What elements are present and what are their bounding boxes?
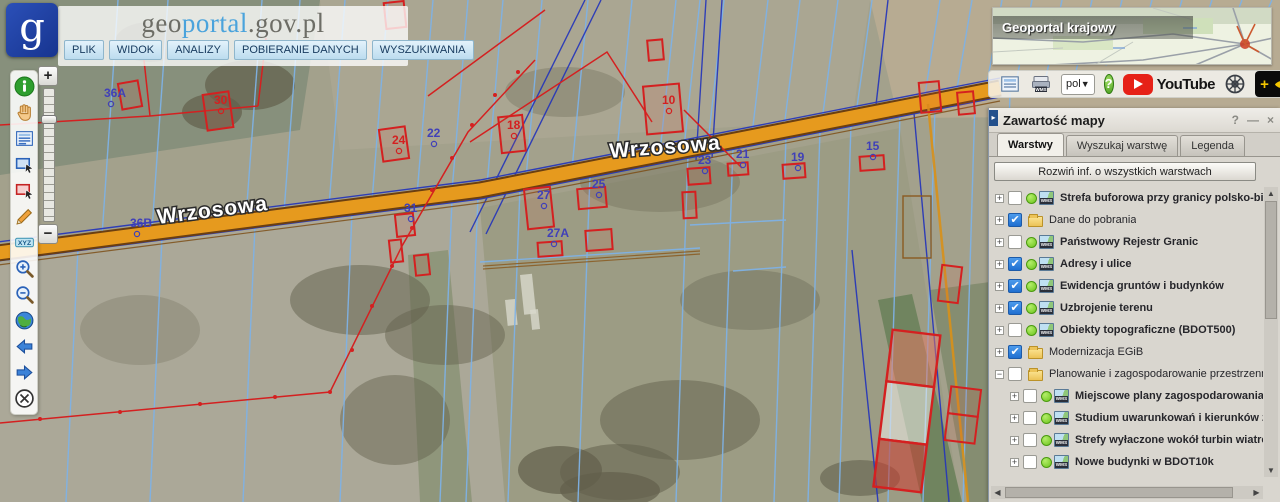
svg-text:18: 18: [507, 118, 521, 132]
wms-layer-icon: [1054, 389, 1069, 403]
layer-checkbox[interactable]: [1023, 411, 1037, 425]
accessibility-contrast-toggle[interactable]: +: [1255, 71, 1280, 97]
zoom-out-icon[interactable]: [14, 284, 35, 305]
geoportal-logo[interactable]: g: [6, 3, 58, 57]
expand-node-icon[interactable]: +: [995, 348, 1004, 357]
scroll-down-icon[interactable]: ▼: [1264, 464, 1278, 477]
draw-pencil-icon[interactable]: [14, 206, 35, 227]
zoom-out-button[interactable]: −: [38, 224, 58, 244]
layer-row: +Strefa buforowa przy granicy polsko-bia…: [991, 187, 1263, 209]
attribute-table-icon[interactable]: [14, 128, 35, 149]
vscroll-thumb[interactable]: [1265, 201, 1277, 319]
contrast-eye-icon: [1274, 78, 1280, 91]
svg-text:15: 15: [866, 139, 880, 153]
clear-map-icon[interactable]: [14, 388, 35, 409]
layer-checkbox[interactable]: [1008, 213, 1022, 227]
layer-label[interactable]: Studium uwarunkowań i kierunków zag: [1075, 412, 1263, 424]
layer-checkbox[interactable]: [1008, 279, 1022, 293]
panel-title: Zawartość mapy: [1003, 113, 1224, 128]
expand-node-icon[interactable]: +: [995, 304, 1004, 313]
layer-row: +Studium uwarunkowań i kierunków zag: [991, 407, 1263, 429]
layer-status-dot: [1041, 413, 1052, 424]
zoom-slider: + −: [38, 66, 60, 244]
panel-body: Rozwiń inf. o wszystkich warstwach +Stre…: [989, 157, 1280, 502]
layer-checkbox[interactable]: [1008, 345, 1022, 359]
layer-row: −Planowanie i zagospodarowanie przestrze…: [991, 363, 1263, 385]
layer-status-dot: [1041, 391, 1052, 402]
chevron-down-icon: ▼: [1081, 79, 1090, 89]
svg-text:19: 19: [791, 150, 805, 164]
map-toolbar: XYZ: [10, 70, 38, 415]
layer-status-dot: [1026, 237, 1037, 248]
panel-collapse-arrow[interactable]: ▸: [989, 110, 998, 126]
main-menu: PLIKWIDOKANALIZYPOBIERANIE DANYCHWYSZUKI…: [64, 40, 408, 60]
svg-text:36A: 36A: [104, 86, 126, 100]
svg-text:27A: 27A: [547, 226, 569, 240]
layer-row: +Strefy wyłaczone wokół turbin wiatrow: [991, 429, 1263, 451]
svg-text:30: 30: [214, 93, 228, 107]
layer-row: +Państwowy Rejestr Granic: [991, 231, 1263, 253]
menu-item-widok[interactable]: WIDOK: [109, 40, 162, 60]
folder-icon: [1028, 216, 1043, 227]
expand-node-icon[interactable]: +: [995, 238, 1004, 247]
panel-titlebar: Zawartość mapy ? — ×: [989, 108, 1280, 133]
svg-text:31: 31: [404, 201, 418, 215]
wms-layer-icon: [1039, 323, 1054, 337]
pan-hand-icon[interactable]: [14, 102, 35, 123]
contrast-plus-icon: +: [1260, 77, 1269, 92]
layer-label[interactable]: Modernizacja EGiB: [1049, 346, 1143, 358]
youtube-play-icon: [1123, 74, 1153, 95]
vertical-scrollbar[interactable]: ▲ ▼: [1264, 187, 1278, 477]
geoportal-app: 36A36B3024221810272527A2321191531Wrzosow…: [0, 0, 1280, 502]
expand-node-icon[interactable]: +: [995, 282, 1004, 291]
expand-all-layers-button[interactable]: Rozwiń inf. o wszystkich warstwach: [994, 162, 1256, 181]
brand-part-portal: portal: [182, 8, 248, 38]
help-button[interactable]: ?: [1104, 74, 1114, 94]
select-area-blue-icon[interactable]: [14, 154, 35, 175]
layer-checkbox[interactable]: [1023, 433, 1037, 447]
expand-node-icon[interactable]: +: [995, 194, 1004, 203]
layer-row: +Portale mapowe: [991, 473, 1263, 477]
layer-checkbox[interactable]: [1008, 301, 1022, 315]
minimap-title: Geoportal krajowy: [993, 16, 1193, 39]
expand-node-icon[interactable]: +: [1010, 436, 1019, 445]
svg-text:WMS: WMS: [1035, 87, 1046, 92]
zoom-in-icon[interactable]: [14, 258, 35, 279]
brand-title: geoportal.gov.pl: [58, 8, 408, 39]
panel-tabbar: WarstwyWyszukaj warstwęLegenda: [989, 133, 1280, 157]
xyz-label-icon[interactable]: XYZ: [14, 232, 35, 253]
brand-part-govpl: .gov.pl: [248, 8, 325, 38]
menu-item-pobieranie-danych[interactable]: POBIERANIE DANYCH: [234, 40, 367, 60]
wms-layer-icon: [1039, 235, 1054, 249]
expand-node-icon[interactable]: +: [1010, 392, 1019, 401]
svg-text:36B: 36B: [130, 216, 152, 230]
scroll-up-icon[interactable]: ▲: [1264, 187, 1278, 200]
layer-label[interactable]: Ewidencja gruntów i budynków: [1060, 280, 1224, 292]
layer-status-dot: [1041, 435, 1052, 446]
wms-layer-icon: [1054, 433, 1069, 447]
youtube-link[interactable]: YouTube: [1123, 74, 1215, 95]
layer-label[interactable]: Dane do pobrania: [1049, 214, 1136, 226]
collapse-node-icon[interactable]: −: [995, 370, 1004, 379]
svg-text:22: 22: [427, 126, 441, 140]
layer-label[interactable]: Adresy i ulice: [1060, 258, 1132, 270]
layer-label[interactable]: Państwowy Rejestr Granic: [1060, 236, 1198, 248]
svg-text:21: 21: [736, 147, 750, 161]
expand-node-icon[interactable]: +: [995, 216, 1004, 225]
next-view-icon[interactable]: [14, 362, 35, 383]
wms-layer-icon: [1039, 257, 1054, 271]
utility-bar: WMS pol ▼ ? YouTube +: [988, 70, 1280, 98]
layer-row: +Dane do pobrania: [991, 209, 1263, 231]
horizontal-scrollbar[interactable]: ◀ ▶: [991, 486, 1263, 499]
folder-icon: [1028, 348, 1043, 359]
layer-checkbox[interactable]: [1008, 323, 1022, 337]
map-contents-panel: ▸ Zawartość mapy ? — × WarstwyWyszukaj w…: [988, 108, 1280, 502]
info-icon[interactable]: [14, 76, 35, 97]
panel-minimize-button[interactable]: —: [1247, 113, 1259, 127]
language-select[interactable]: pol ▼: [1061, 74, 1095, 95]
svg-text:10: 10: [662, 93, 676, 107]
expand-node-icon[interactable]: +: [995, 260, 1004, 269]
wms-layer-icon: [1054, 455, 1069, 469]
layer-status-dot: [1026, 259, 1037, 270]
language-value: pol: [1066, 78, 1081, 90]
hscroll-thumb[interactable]: [1005, 487, 1233, 498]
layer-status-dot: [1041, 457, 1052, 468]
folder-icon: [1028, 370, 1043, 381]
tab-warstwy[interactable]: Warstwy: [997, 133, 1064, 156]
layer-label[interactable]: Obiekty topograficzne (BDOT500): [1060, 324, 1235, 336]
previous-view-icon[interactable]: [14, 336, 35, 357]
menu-item-plik[interactable]: PLIK: [64, 40, 104, 60]
full-extent-globe-icon[interactable]: [14, 310, 35, 331]
wheel-icon[interactable]: [1224, 73, 1246, 95]
layer-checkbox[interactable]: [1008, 367, 1022, 381]
layer-tree: +Strefa buforowa przy granicy polsko-bia…: [991, 187, 1263, 477]
layer-checkbox[interactable]: [1008, 235, 1022, 249]
panel-help-button[interactable]: ?: [1232, 113, 1239, 127]
wms-printer-icon[interactable]: WMS: [1030, 73, 1052, 95]
svg-text:25: 25: [592, 177, 606, 191]
zoom-in-button[interactable]: +: [38, 66, 58, 86]
menu-item-wyszukiwania[interactable]: WYSZUKIWANIA: [372, 40, 474, 60]
wms-layer-icon: [1054, 411, 1069, 425]
layer-label[interactable]: Planowanie i zagospodarowanie przestrzen…: [1049, 368, 1263, 380]
layer-checkbox[interactable]: [1023, 455, 1037, 469]
brand-part-geo: geo: [141, 8, 181, 38]
svg-text:24: 24: [392, 133, 406, 147]
layer-label[interactable]: Uzbrojenie terenu: [1060, 302, 1153, 314]
layer-row: +Nowe budynki w BDOT10k: [991, 451, 1263, 473]
layer-label[interactable]: Strefy wyłaczone wokół turbin wiatrow: [1075, 434, 1263, 446]
svg-text:XYZ: XYZ: [17, 240, 30, 247]
zoom-slider-track[interactable]: [43, 88, 55, 222]
wms-layer-icon: [1039, 301, 1054, 315]
expand-node-icon[interactable]: +: [995, 326, 1004, 335]
layer-row: +Uzbrojenie terenu: [991, 297, 1263, 319]
menu-item-analizy[interactable]: ANALIZY: [167, 40, 229, 60]
overview-minimap[interactable]: Geoportal krajowy: [992, 7, 1272, 65]
layer-status-dot: [1026, 193, 1037, 204]
layer-label[interactable]: Nowe budynki w BDOT10k: [1075, 456, 1214, 468]
svg-text:27: 27: [537, 188, 551, 202]
layer-checkbox[interactable]: [1008, 191, 1022, 205]
layer-row: +Ewidencja gruntów i budynków: [991, 275, 1263, 297]
layer-status-dot: [1026, 325, 1037, 336]
layer-row: +Modernizacja EGiB: [991, 341, 1263, 363]
select-area-red-icon[interactable]: [14, 180, 35, 201]
panel-form-icon[interactable]: [999, 73, 1021, 95]
scroll-left-icon[interactable]: ◀: [991, 486, 1004, 499]
layer-label[interactable]: Miejscowe plany zagospodarowania prz: [1075, 390, 1263, 402]
layer-row: +Adresy i ulice: [991, 253, 1263, 275]
layer-status-dot: [1026, 303, 1037, 314]
tab-legenda[interactable]: Legenda: [1180, 135, 1245, 156]
layer-checkbox[interactable]: [1008, 257, 1022, 271]
youtube-label: YouTube: [1157, 76, 1215, 93]
layer-checkbox[interactable]: [1023, 389, 1037, 403]
expand-node-icon[interactable]: +: [1010, 458, 1019, 467]
tab-wyszukaj-warstwę[interactable]: Wyszukaj warstwę: [1066, 135, 1178, 156]
layer-label[interactable]: Strefa buforowa przy granicy polsko-biał…: [1060, 192, 1263, 204]
zoom-slider-handle[interactable]: [41, 115, 57, 124]
layer-status-dot: [1026, 281, 1037, 292]
panel-close-button[interactable]: ×: [1267, 113, 1274, 127]
wms-layer-icon: [1039, 191, 1054, 205]
expand-node-icon[interactable]: +: [1010, 414, 1019, 423]
layer-row: +Miejscowe plany zagospodarowania prz: [991, 385, 1263, 407]
scroll-right-icon[interactable]: ▶: [1250, 486, 1263, 499]
wms-layer-icon: [1039, 279, 1054, 293]
layer-row: +Obiekty topograficzne (BDOT500): [991, 319, 1263, 341]
